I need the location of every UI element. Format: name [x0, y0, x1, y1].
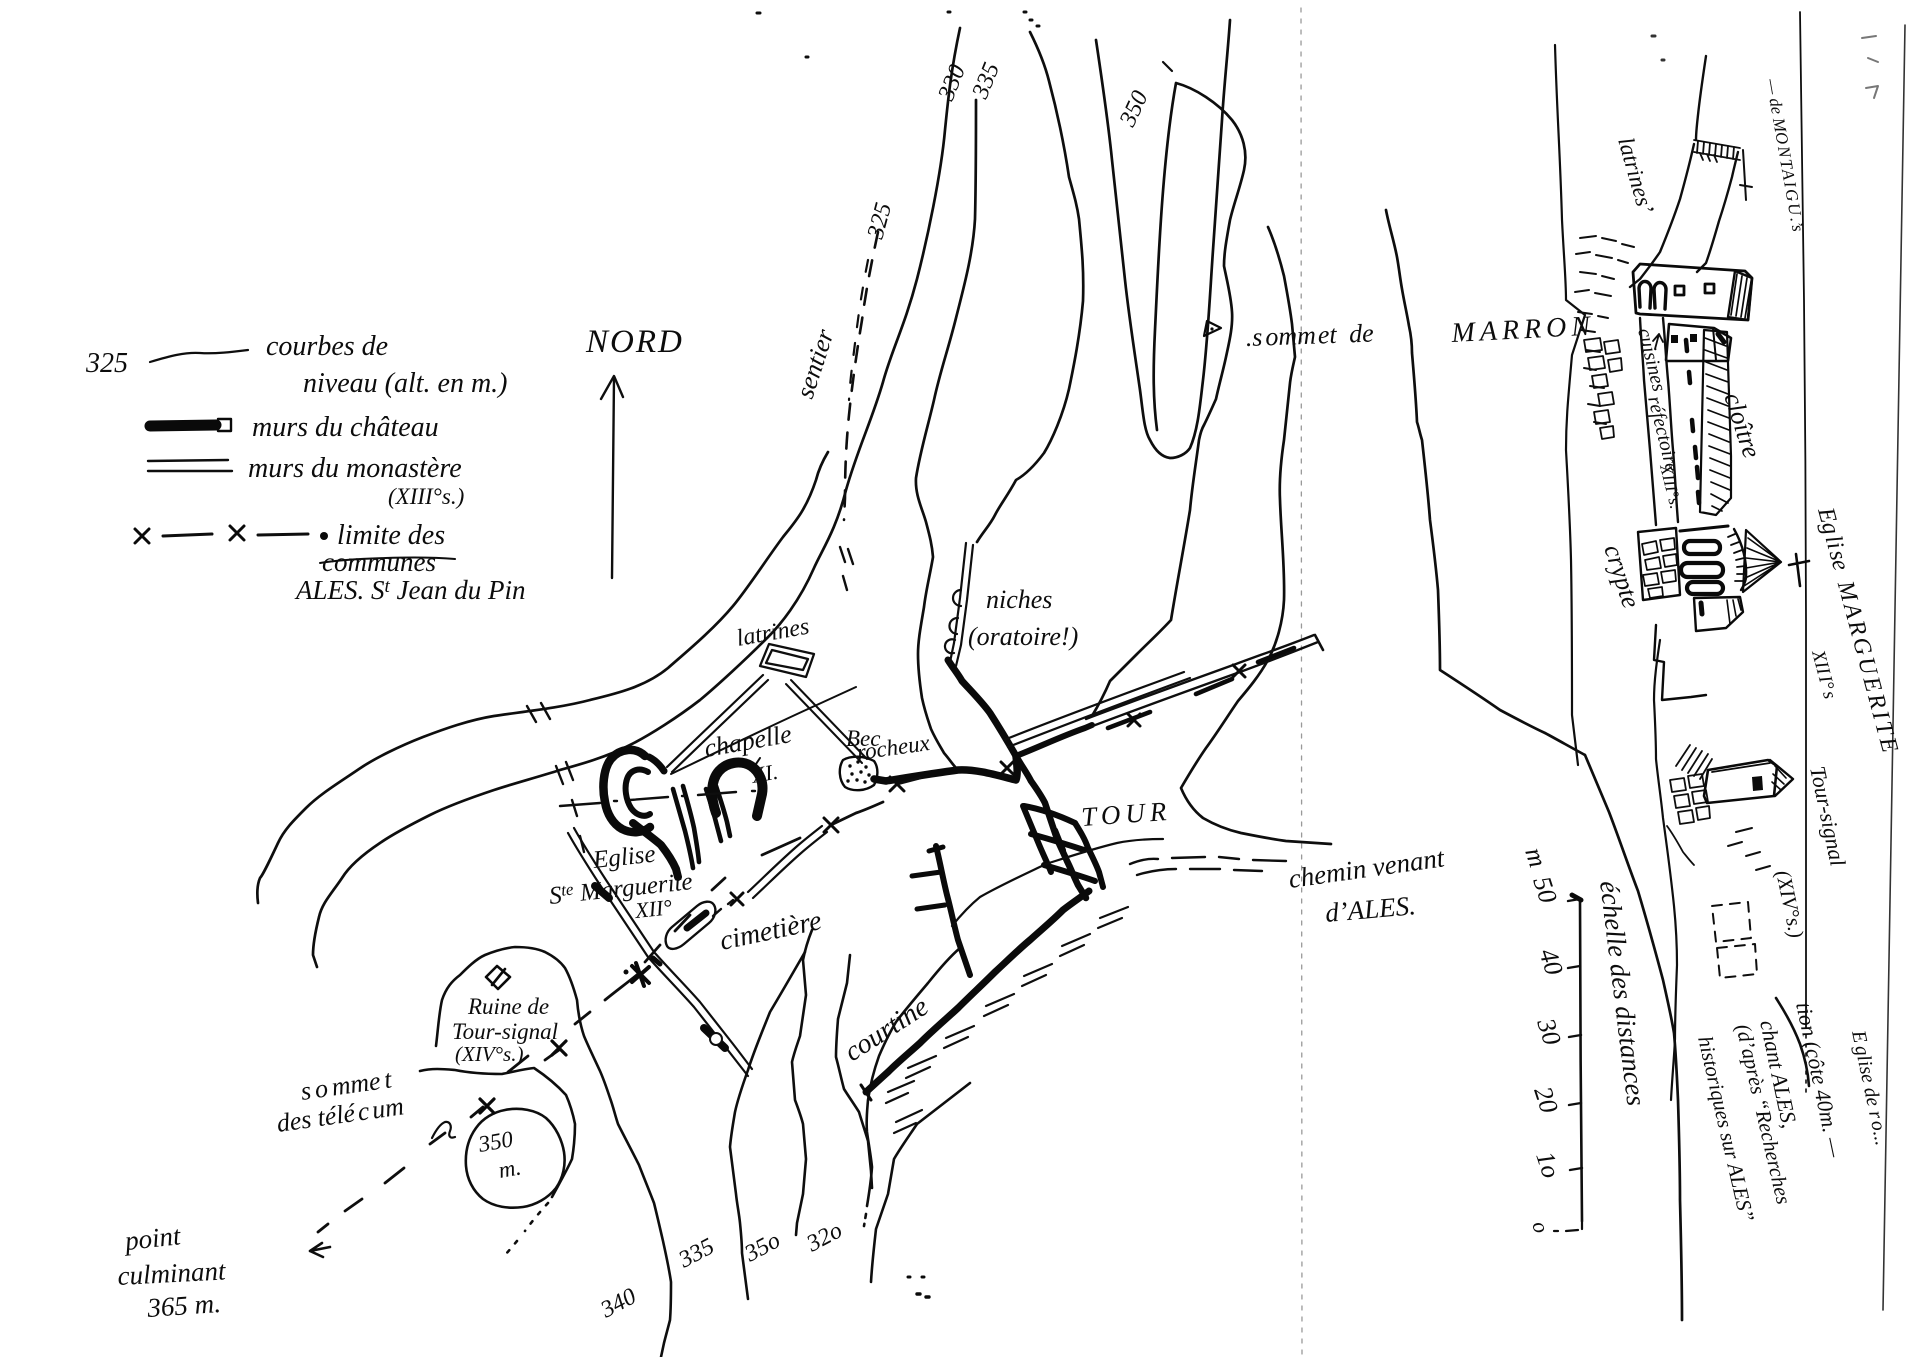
svg-text:courbes de: courbes de: [266, 331, 388, 362]
svg-text:Ruine de: Ruine de: [467, 994, 549, 1019]
svg-text:point: point: [122, 1220, 184, 1256]
svg-text:niveau (alt. en m.): niveau (alt. en m.): [303, 368, 508, 399]
svg-text:ALES. St Jean du Pin: ALES. St Jean du Pin: [294, 575, 526, 605]
svg-text:325: 325: [85, 348, 128, 379]
svg-text:NORD: NORD: [585, 324, 684, 360]
svg-text:murs du monastère: murs du monastère: [248, 453, 462, 484]
svg-text:murs du château: murs du château: [252, 412, 439, 443]
svg-text:m.: m.: [497, 1154, 523, 1183]
svg-text:365 m.: 365 m.: [145, 1288, 221, 1323]
svg-text:XII°: XII°: [633, 894, 673, 923]
svg-text:TOUR: TOUR: [1080, 796, 1172, 832]
svg-text:niches: niches: [986, 585, 1052, 614]
svg-text:culminant: culminant: [117, 1255, 228, 1291]
svg-text:(oratoire!): (oratoire!): [968, 622, 1078, 651]
svg-text:(XIV°s.): (XIV°s.): [455, 1042, 523, 1066]
svg-text:Tour-signal: Tour-signal: [452, 1019, 558, 1044]
svg-text:communes: communes: [322, 547, 436, 577]
svg-text:(XIII°s.): (XIII°s.): [388, 484, 464, 509]
